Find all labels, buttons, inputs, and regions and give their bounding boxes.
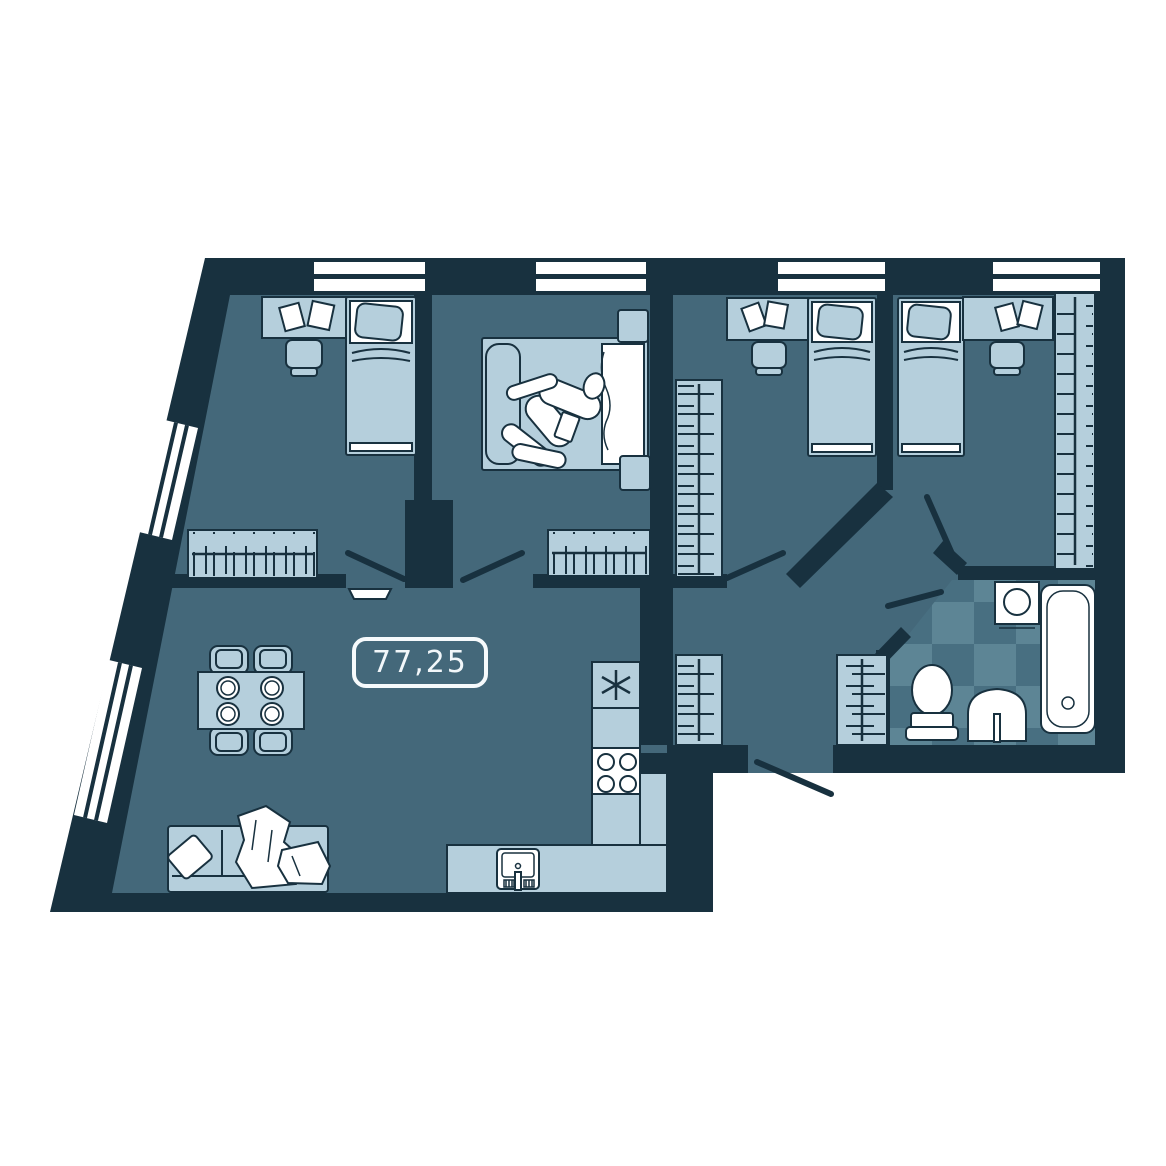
desk [963, 297, 1053, 340]
desk-chair [752, 342, 786, 375]
dining-table [198, 672, 304, 729]
entrance-opening [748, 745, 833, 773]
area-label: 77,25 [352, 637, 488, 688]
kitchen-sink [497, 849, 539, 890]
paper-icon [1017, 301, 1042, 329]
closet [837, 655, 887, 745]
pillow-icon [816, 304, 863, 340]
desk [262, 297, 348, 338]
nightstand [618, 310, 648, 342]
door-sill [349, 589, 391, 599]
wardrobe [188, 530, 317, 578]
bathtub [1041, 585, 1095, 733]
washing-machine [995, 582, 1039, 628]
sink [968, 689, 1026, 742]
pillow-icon [906, 304, 951, 340]
dining-chair [210, 646, 248, 674]
kitchen-counter [447, 845, 667, 893]
tall-wardrobe [1055, 293, 1095, 569]
paper-icon [308, 301, 335, 330]
single-bed [898, 298, 964, 456]
kitchen-counter [640, 773, 667, 845]
desk [727, 298, 815, 340]
single-bed [808, 298, 876, 456]
sofa-pillow-icon [278, 842, 330, 884]
closet [676, 655, 722, 745]
desk-chair [286, 340, 322, 376]
kitchen-counter [592, 708, 640, 748]
kitchen-counter [592, 794, 640, 845]
fridge [592, 662, 640, 708]
floor-plan: 77,25 [0, 0, 1166, 1166]
pillow-icon [354, 303, 403, 342]
stove [592, 748, 640, 794]
dining-chair [254, 646, 292, 674]
nightstand [620, 456, 650, 490]
tall-wardrobe [676, 380, 722, 577]
dining-chair [210, 727, 248, 755]
single-bed [346, 297, 416, 455]
desk-chair [990, 342, 1024, 375]
paper-icon [764, 301, 788, 328]
wardrobe [548, 530, 650, 576]
dining-chair [254, 727, 292, 755]
